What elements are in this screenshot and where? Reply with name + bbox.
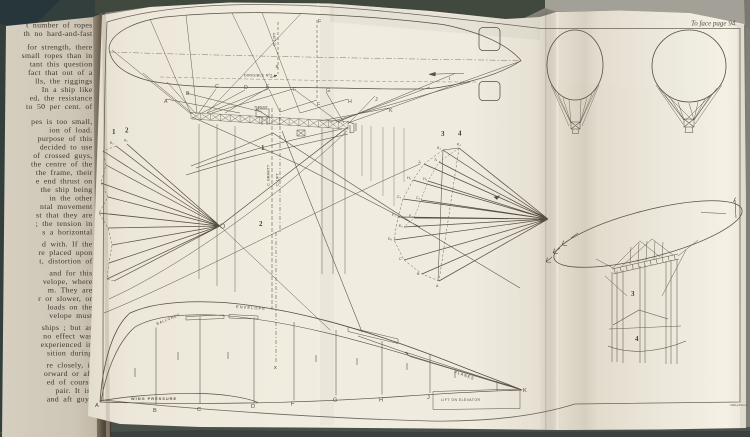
svg-text:and aft guys: and aft guys xyxy=(47,395,93,404)
svg-text:4: 4 xyxy=(635,335,639,343)
svg-text:C₃: C₃ xyxy=(397,195,402,199)
svg-text:C₄: C₄ xyxy=(416,196,421,200)
svg-text:K: K xyxy=(389,108,393,114)
svg-text:1: 1 xyxy=(261,144,265,152)
svg-text:G: G xyxy=(333,398,337,404)
svg-text:C. LIFT: C. LIFT xyxy=(276,173,280,186)
svg-text:LIFT ON ELEVATOR: LIFT ON ELEVATOR xyxy=(441,398,480,402)
svg-text:F₄: F₄ xyxy=(409,214,413,218)
svg-text:x: x xyxy=(276,64,279,70)
svg-text:To face page 94.: To face page 94. xyxy=(691,20,737,28)
svg-text:K₂: K₂ xyxy=(110,141,114,145)
svg-text:1: 1 xyxy=(112,128,116,136)
svg-text:A: A xyxy=(95,403,99,409)
svg-text:Malby&Sons.: Malby&Sons. xyxy=(730,403,748,407)
svg-text:B: B xyxy=(153,408,157,414)
svg-text:th no hard-and-fast: th no hard-and-fast xyxy=(23,29,93,38)
svg-text:C: C xyxy=(197,407,201,413)
svg-text:2: 2 xyxy=(259,220,263,228)
svg-text:3: 3 xyxy=(441,130,445,138)
svg-text:J: J xyxy=(427,395,430,401)
svg-text:K₃: K₃ xyxy=(437,146,441,150)
svg-text:H₄: H₄ xyxy=(423,177,428,181)
svg-text:DIRIGIBLE Nº2: DIRIGIBLE Nº2 xyxy=(244,74,273,78)
svg-text:3: 3 xyxy=(631,290,635,298)
svg-text:WING PRESSURE: WING PRESSURE xyxy=(131,396,177,401)
svg-text:K₂: K₂ xyxy=(124,139,128,143)
svg-text:K: K xyxy=(523,388,527,394)
svg-text:s a horizontal: s a horizontal xyxy=(42,228,93,237)
svg-text:K₄: K₄ xyxy=(457,143,461,147)
svg-text:THRUST: THRUST xyxy=(254,106,268,110)
svg-text:H: H xyxy=(348,99,352,105)
svg-text:C: C xyxy=(399,257,402,261)
svg-text:t, distortion of: t, distortion of xyxy=(39,257,92,266)
svg-text:A: A xyxy=(164,99,168,105)
svg-text:F: F xyxy=(291,402,295,408)
svg-text:D: D xyxy=(251,404,255,410)
svg-text:I: I xyxy=(449,76,450,81)
svg-text:H: H xyxy=(379,398,383,404)
svg-text:J: J xyxy=(375,97,378,103)
svg-text:D₃: D₃ xyxy=(388,237,393,241)
svg-text:J₃: J₃ xyxy=(418,160,422,164)
svg-text:E₃: E₃ xyxy=(399,224,403,228)
svg-text:F₃: F₃ xyxy=(392,213,396,217)
svg-text:H₃: H₃ xyxy=(407,176,412,180)
svg-text:C: C xyxy=(215,84,219,90)
svg-text:C. GRAVITY: C. GRAVITY xyxy=(267,164,271,186)
svg-text:velope must: velope must xyxy=(49,311,93,320)
svg-text:2: 2 xyxy=(125,127,129,135)
svg-text:J₄: J₄ xyxy=(434,158,438,162)
svg-text:x: x xyxy=(274,365,277,371)
svg-text:to 50 per cent. of: to 50 per cent. of xyxy=(26,102,93,111)
svg-text:sition during: sition during xyxy=(47,349,93,358)
svg-text:4: 4 xyxy=(458,130,462,138)
